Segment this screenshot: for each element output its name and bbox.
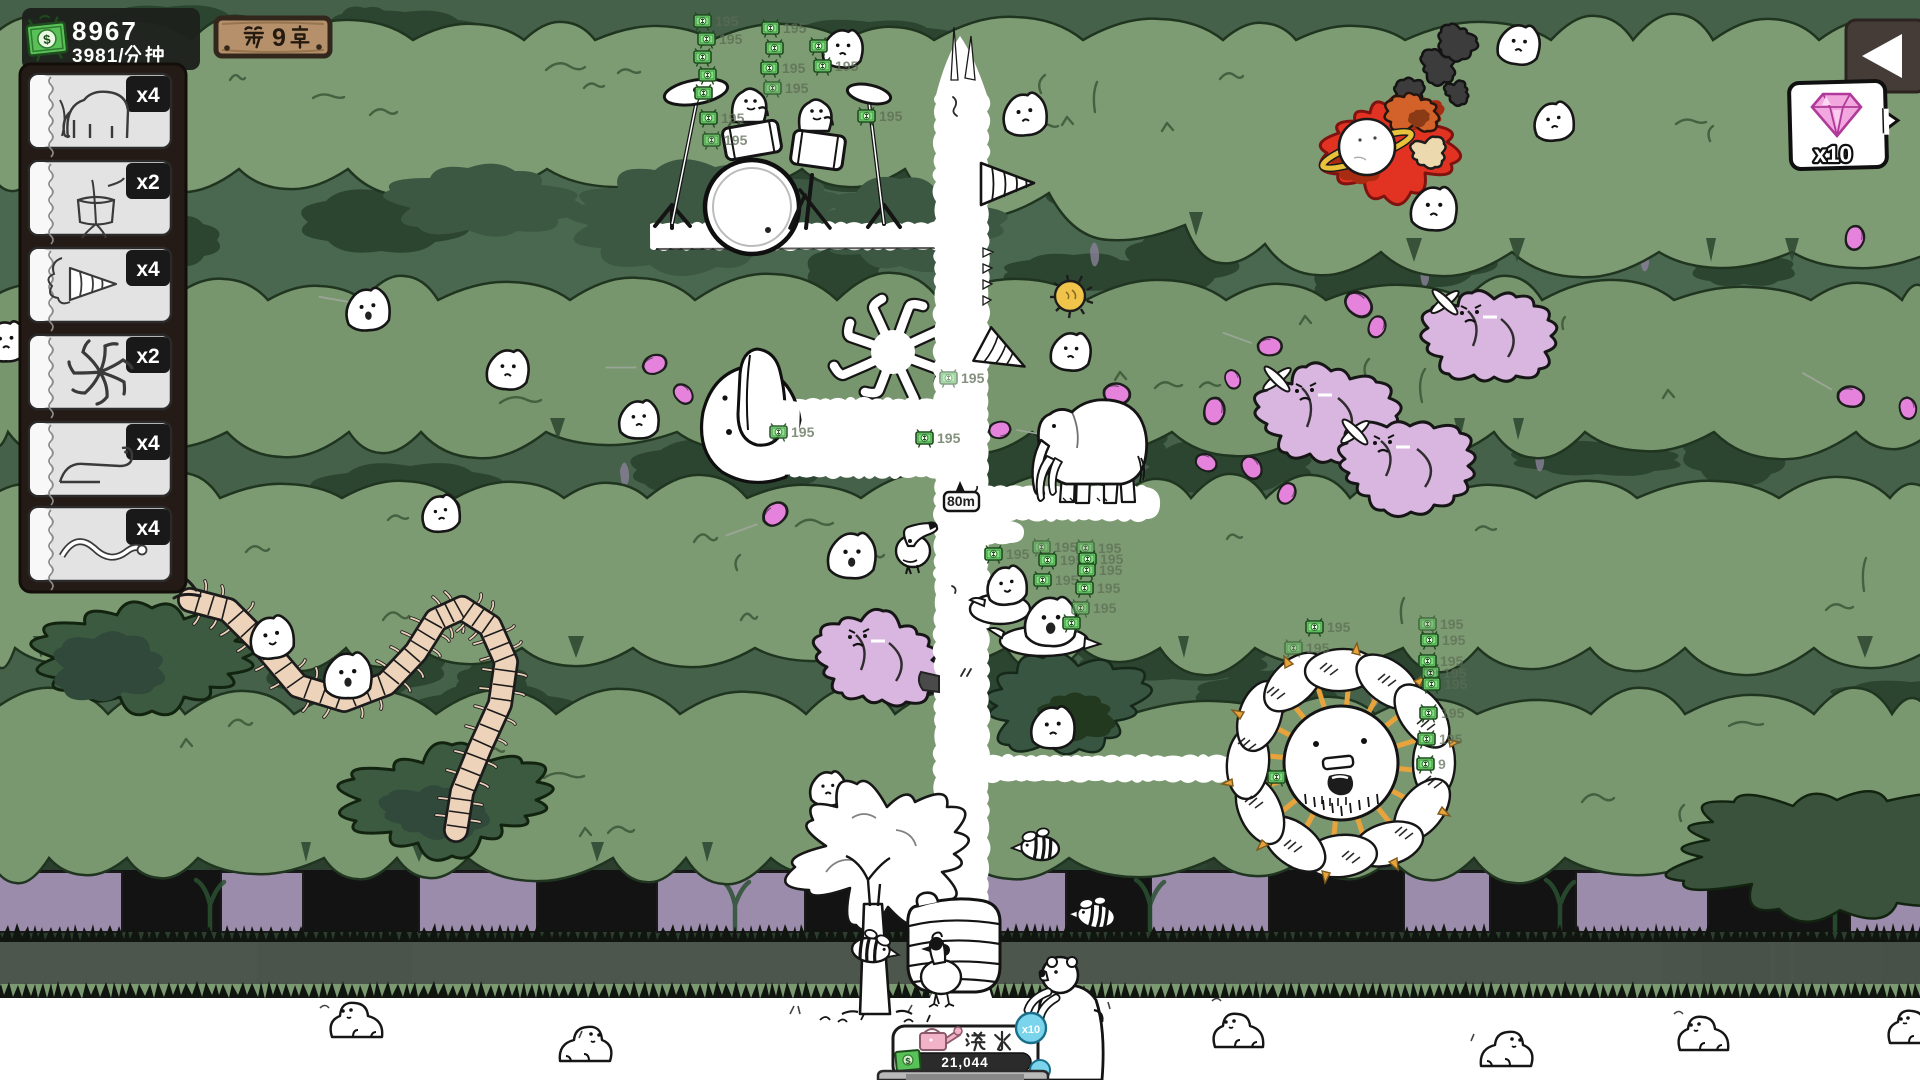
svg-text:x4: x4 — [136, 258, 160, 281]
svg-text:195: 195 — [721, 110, 745, 126]
svg-text:195: 195 — [785, 80, 809, 96]
svg-text:195: 195 — [715, 13, 739, 29]
svg-text:x4: x4 — [136, 84, 160, 107]
svg-text:x4: x4 — [136, 432, 160, 455]
svg-text:$: $ — [905, 1056, 911, 1066]
svg-text:195: 195 — [724, 132, 748, 148]
svg-text:195: 195 — [1442, 632, 1466, 648]
svg-text:195: 195 — [1006, 546, 1030, 562]
svg-text:80m: 80m — [947, 493, 975, 509]
svg-text:195: 195 — [719, 31, 743, 47]
svg-text:195: 195 — [1444, 676, 1468, 692]
svg-text:21,044: 21,044 — [941, 1055, 988, 1070]
svg-text:195: 195 — [1099, 562, 1123, 578]
svg-text:195: 195 — [1055, 572, 1079, 588]
svg-text:195: 195 — [961, 370, 985, 386]
svg-text:9: 9 — [272, 24, 286, 52]
svg-text:x2: x2 — [136, 345, 159, 368]
svg-text:195: 195 — [1327, 619, 1351, 635]
svg-text:x4: x4 — [136, 517, 160, 540]
svg-text:195: 195 — [1306, 640, 1330, 656]
svg-text:195: 195 — [791, 424, 815, 440]
svg-text:195: 195 — [1441, 705, 1465, 721]
svg-text:195: 195 — [783, 20, 807, 36]
svg-text:195: 195 — [1093, 600, 1117, 616]
svg-text:195: 195 — [835, 58, 859, 74]
svg-text:195: 195 — [1439, 731, 1463, 747]
svg-text:x2: x2 — [136, 171, 159, 194]
svg-text:x10: x10 — [1814, 141, 1852, 167]
svg-text:195: 195 — [782, 60, 806, 76]
svg-text:9: 9 — [1438, 756, 1446, 772]
svg-text:195: 195 — [937, 430, 961, 446]
svg-text:195: 195 — [1097, 580, 1121, 596]
svg-text:195: 195 — [1440, 616, 1464, 632]
svg-text:x10: x10 — [1022, 1024, 1040, 1036]
svg-text:8967: 8967 — [72, 16, 138, 46]
svg-text:195: 195 — [879, 108, 903, 124]
